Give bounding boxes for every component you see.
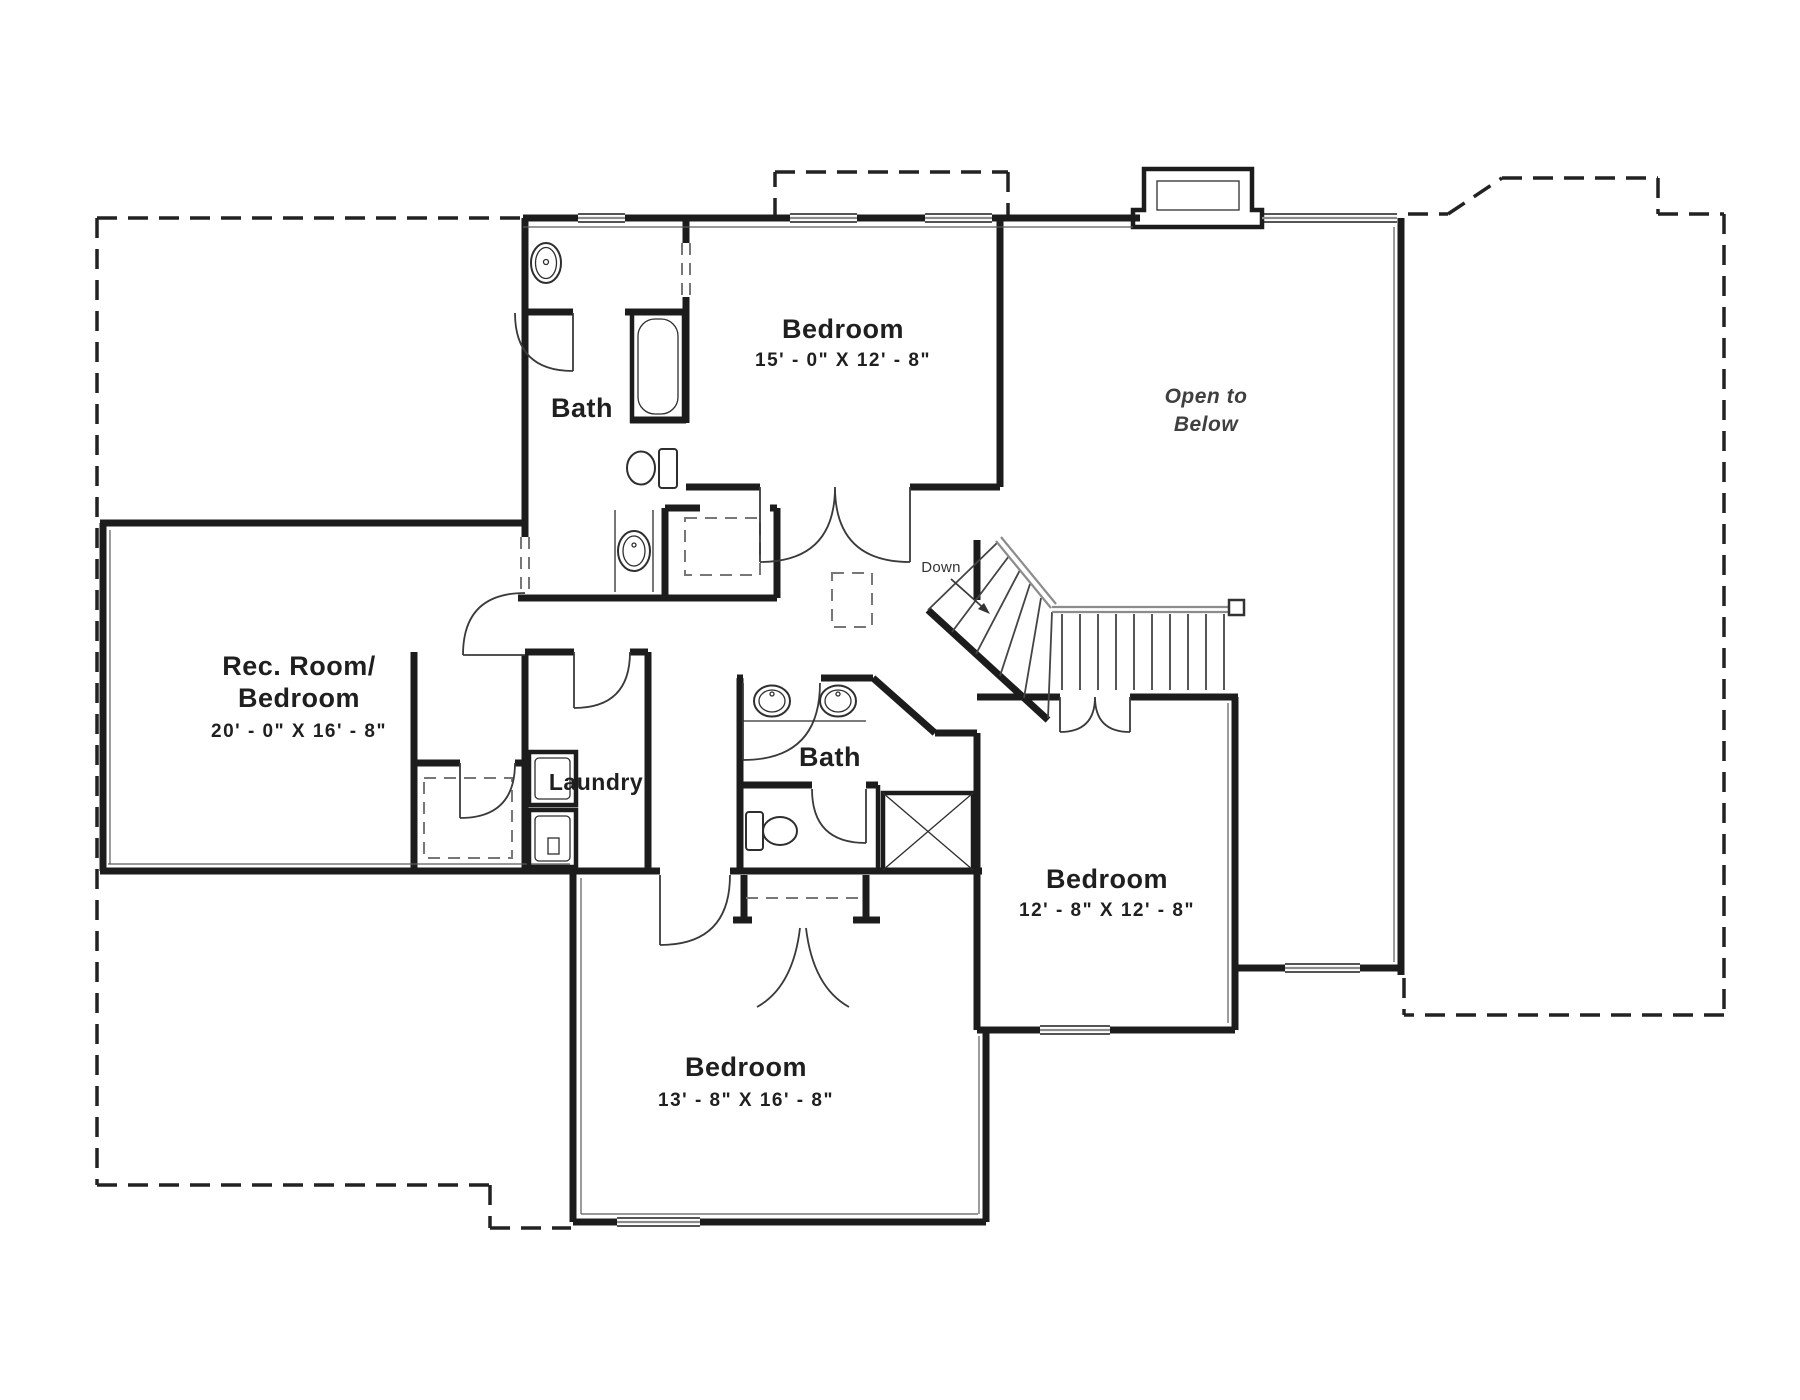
window-band: [1262, 214, 1397, 222]
door: [812, 789, 866, 843]
cased-opening-rec: [521, 537, 529, 590]
floor-plan-drawing: Bedroom 15' - 0" X 12' - 8" Bath Open to…: [0, 0, 1800, 1400]
window: [617, 1218, 700, 1226]
stairs: [928, 537, 1244, 718]
laundry-label: Laundry: [549, 769, 643, 795]
pedestal-sink-icon: [531, 243, 561, 283]
bath-center-label: Bath: [799, 742, 861, 772]
door: [460, 763, 515, 818]
door: [463, 593, 525, 655]
toilet-icon: [746, 812, 797, 850]
bedroom-right-dims: 12' - 8" X 12' - 8": [1019, 900, 1195, 921]
cased-opening-bedroom: [682, 243, 690, 297]
open-to-below-line2: Below: [1174, 413, 1240, 436]
bathtub-icon: [632, 313, 684, 421]
shower-icon: [883, 793, 973, 870]
door-double-bedroom-right: [1060, 697, 1130, 732]
footprint-right: [1404, 178, 1724, 1015]
window: [790, 214, 857, 222]
rec-room-label-2: Bedroom: [238, 683, 360, 713]
bedroom-right-label: Bedroom: [1046, 864, 1168, 894]
bedroom-top-dims: 15' - 0" X 12' - 8": [755, 350, 931, 371]
window: [1285, 964, 1360, 972]
bedroom-top-label: Bedroom: [782, 314, 904, 344]
footprint-top-bay: [775, 172, 1008, 218]
dryer-icon: [529, 810, 576, 867]
vanity-sink-icon: [615, 510, 653, 592]
bath-top-label: Bath: [551, 393, 613, 423]
toilet-icon: [627, 449, 677, 488]
window: [925, 214, 992, 222]
rec-room-dims: 20' - 0" X 16' - 8": [211, 721, 387, 742]
closet-shelf-top: [685, 518, 760, 575]
wall-centerbath-diag: [873, 678, 935, 733]
footprint-bottom-left: [97, 1185, 571, 1228]
down-label: Down: [921, 559, 961, 576]
window: [1040, 1026, 1110, 1034]
bedroom-bottom-dims: 13' - 8" X 16' - 8": [658, 1090, 834, 1111]
rec-room-label-1: Rec. Room/: [222, 651, 376, 681]
door-double-closet: [757, 928, 849, 1007]
door-double: [760, 487, 910, 562]
open-to-below-line1: Open to: [1165, 385, 1248, 408]
window: [578, 214, 625, 222]
railing-post: [1229, 600, 1244, 615]
door: [574, 652, 630, 708]
double-vanity-sink-icon: [741, 686, 866, 722]
chimney: [1133, 169, 1262, 227]
door: [660, 875, 730, 945]
attic-access: [832, 573, 872, 627]
stair-treads: [1062, 614, 1224, 690]
bedroom-bottom-label: Bedroom: [685, 1052, 807, 1082]
stair-railing: [996, 537, 1231, 612]
chimney-inner: [1157, 181, 1239, 210]
floor-plan-page: Bedroom 15' - 0" X 12' - 8" Bath Open to…: [0, 0, 1800, 1400]
